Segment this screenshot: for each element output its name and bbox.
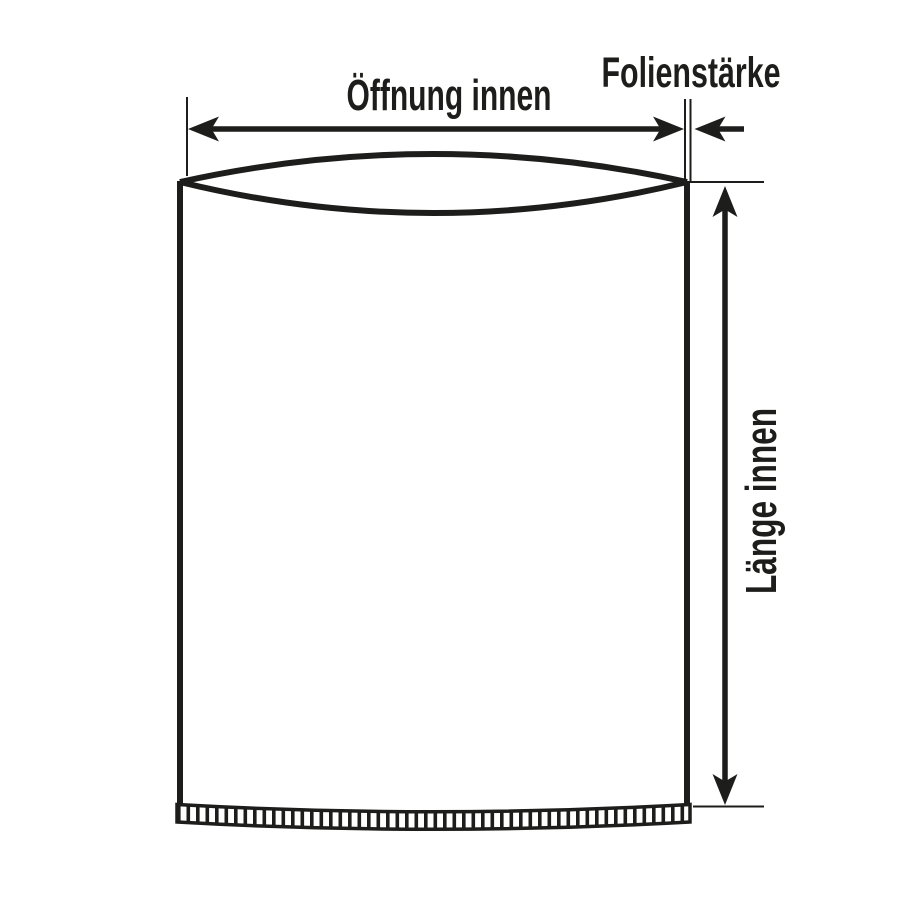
length-dimension: Länge innen [690, 182, 786, 807]
opening-lower-arc [180, 182, 687, 213]
inner-length-label: Länge innen [737, 408, 786, 594]
bag-opening-lens [180, 154, 687, 213]
opening-width-label: Öffnung innen [347, 71, 552, 120]
opening-upper-arc [180, 154, 687, 182]
film-thickness-label: Folienstärke [602, 49, 781, 97]
bottom-seal-seam [177, 805, 690, 830]
bag-dimension-diagram: Öffnung innen Folienstärke Länge innen [0, 0, 900, 900]
bag-outline [180, 181, 687, 821]
diagram-canvas: Öffnung innen Folienstärke Länge innen [0, 0, 900, 900]
